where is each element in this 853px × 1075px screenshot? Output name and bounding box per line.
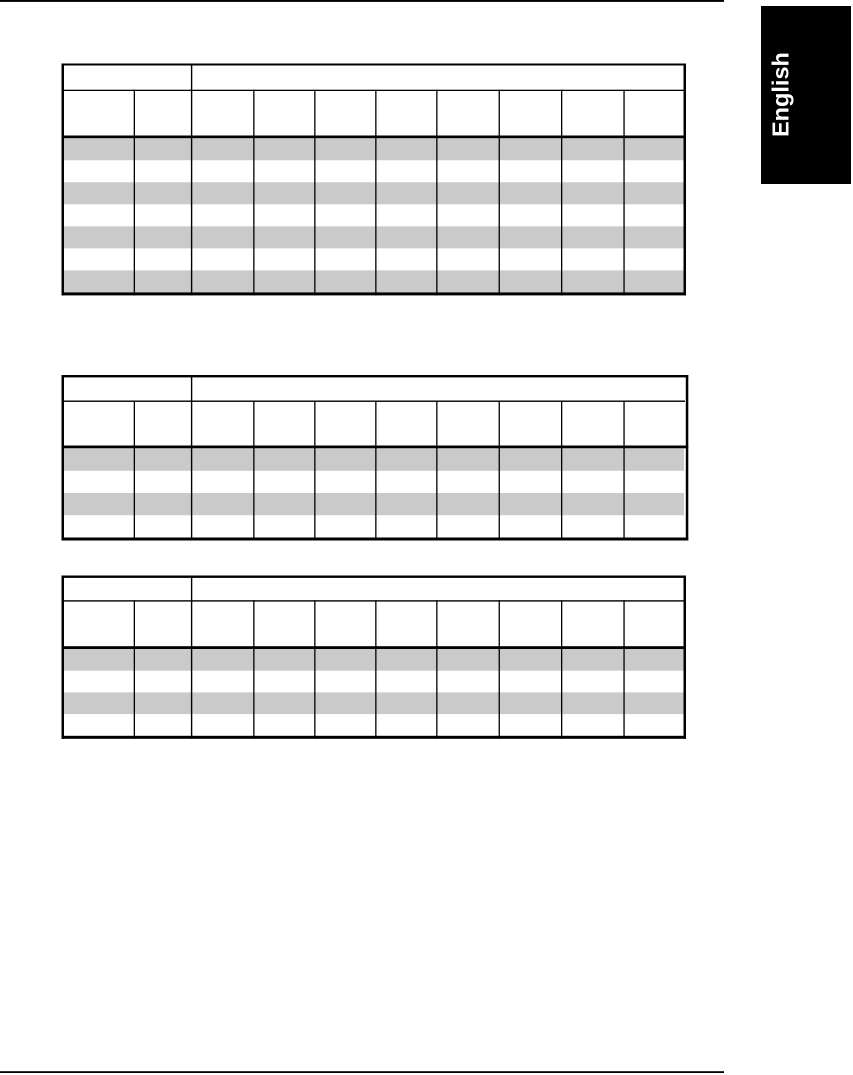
svg-text:English: English (768, 52, 794, 137)
